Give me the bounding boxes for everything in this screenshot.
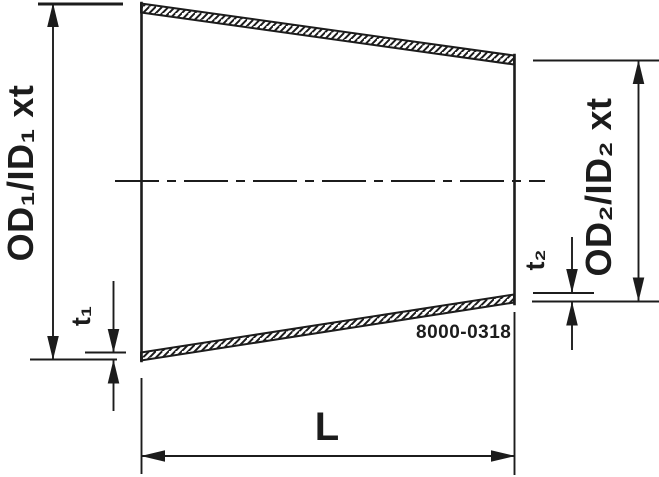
od2-label: OD₂/ID₂ xt [578, 97, 619, 276]
drawing-canvas: OD₁/ID₁ xt OD₂/ID₂ xt t₁ t₂ L 8000-0318 [0, 0, 659, 477]
t1-label: t₁ [66, 306, 96, 326]
top-wall-hatched [141, 4, 514, 65]
labels: OD₁/ID₁ xt OD₂/ID₂ xt t₁ t₂ L 8000-0318 [0, 85, 619, 449]
od1-label: OD₁/ID₁ xt [0, 85, 41, 262]
reducer-technical-diagram: OD₁/ID₁ xt OD₂/ID₂ xt t₁ t₂ L 8000-0318 [0, 0, 659, 477]
length-label: L [315, 405, 339, 449]
t2-label: t₂ [520, 250, 550, 271]
reducer-body [141, 3, 515, 361]
part-number: 8000-0318 [416, 322, 511, 343]
drawing-root: OD₁/ID₁ xt OD₂/ID₂ xt t₁ t₂ L 8000-0318 [0, 3, 659, 475]
